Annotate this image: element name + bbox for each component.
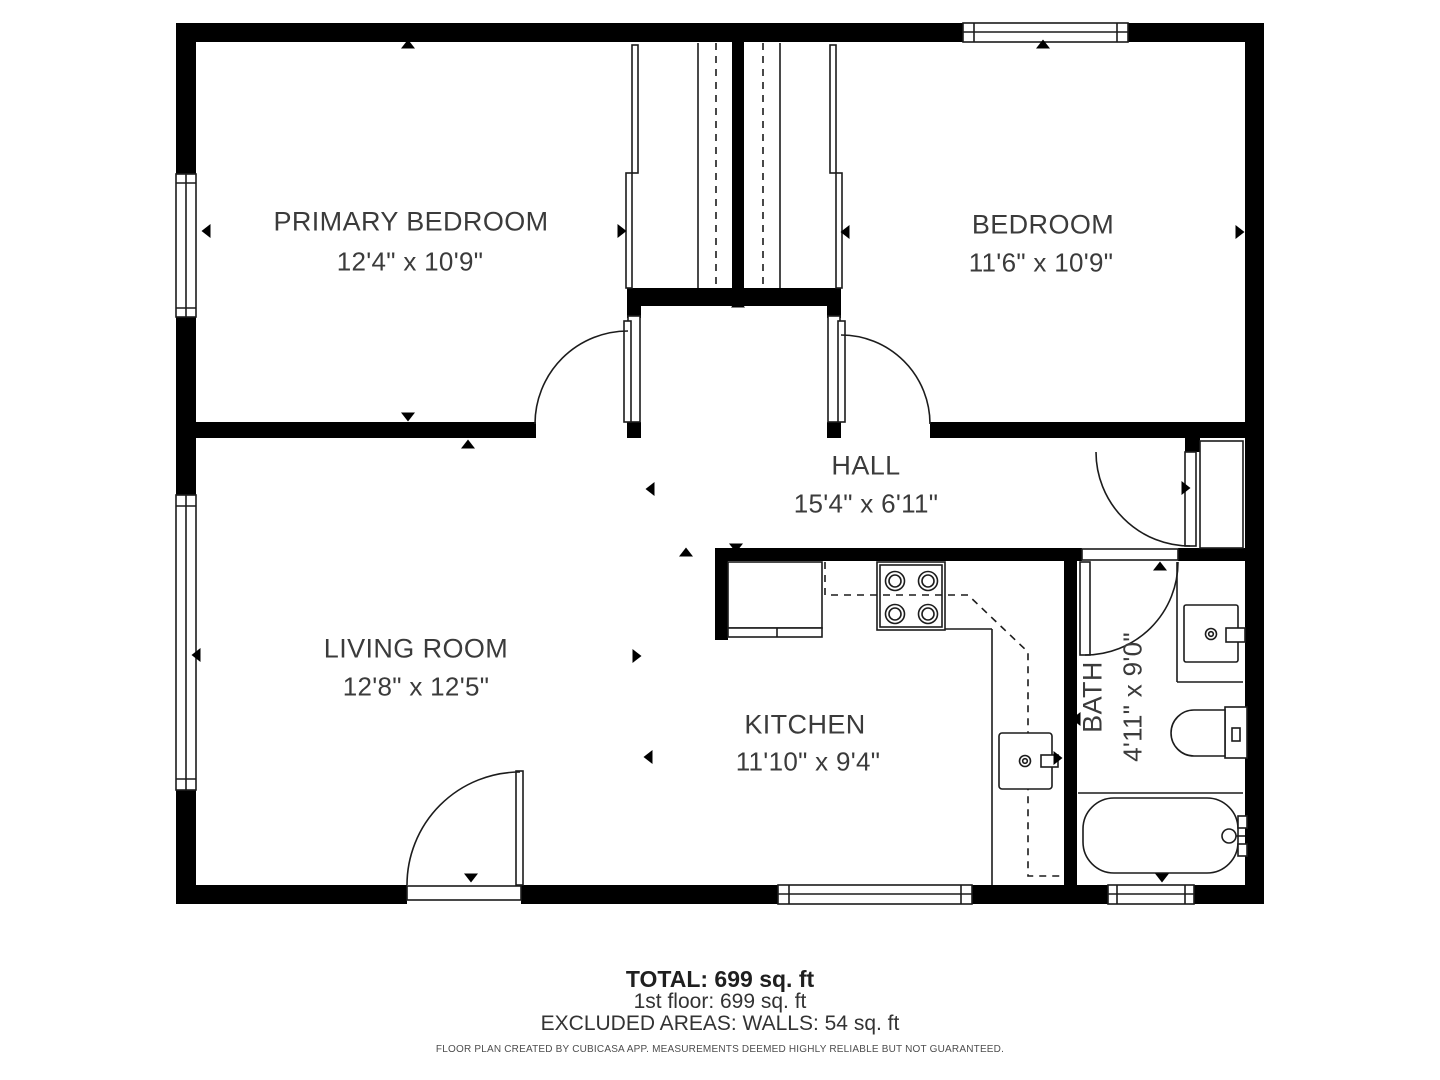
wall <box>627 288 641 318</box>
wall <box>930 422 1245 438</box>
direction-marker-icon <box>841 225 850 239</box>
direction-marker-icon <box>1036 40 1050 49</box>
room-dims-bath: 4'11" x 9'0" <box>1113 632 1152 762</box>
door-leaf <box>1185 452 1196 546</box>
wall <box>715 548 1082 561</box>
direction-marker-icon <box>679 548 693 557</box>
hall-closet <box>1200 441 1243 548</box>
direction-marker-icon <box>192 648 201 662</box>
floor-plan-page: PRIMARY BEDROOM 12'4" x 10'9" BEDROOM 11… <box>0 0 1440 1080</box>
wall <box>176 317 196 495</box>
room-dims-bedroom: 11'6" x 10'9" <box>969 248 1114 279</box>
wall <box>972 885 1108 904</box>
wall <box>176 23 196 174</box>
direction-marker-icon <box>644 750 653 764</box>
door-arc <box>1096 452 1190 546</box>
sliding-door-panel <box>830 45 836 173</box>
direction-marker-icon <box>1153 562 1167 571</box>
door-jamb <box>628 316 640 422</box>
closet-left <box>626 43 716 288</box>
direction-marker-icon <box>1054 751 1063 765</box>
refrigerator-icon <box>728 562 822 637</box>
direction-marker-icon <box>729 544 743 553</box>
wall <box>1178 548 1245 561</box>
door-leaf <box>516 771 523 885</box>
direction-marker-icon <box>618 224 627 238</box>
stove-icon <box>877 562 945 630</box>
door-arc <box>841 335 930 424</box>
direction-marker-icon <box>401 40 415 49</box>
wall <box>176 23 963 42</box>
room-dims-primary-bedroom: 12'4" x 10'9" <box>337 247 484 278</box>
direction-marker-icon <box>646 482 655 496</box>
door-arc <box>535 331 628 424</box>
kitchen-sink-icon <box>999 733 1058 789</box>
total-area-text: TOTAL: 699 sq. ft <box>626 966 814 993</box>
direction-marker-icon <box>461 440 475 449</box>
room-label-bedroom: BEDROOM <box>972 210 1114 241</box>
wall <box>627 422 641 438</box>
window <box>778 885 972 904</box>
wall <box>1245 23 1264 904</box>
disclaimer-text: FLOOR PLAN CREATED BY CUBICASA APP. MEAS… <box>436 1044 1004 1055</box>
room-label-living-room: LIVING ROOM <box>324 634 508 665</box>
bathtub-icon <box>1083 798 1247 873</box>
closet-right <box>763 43 842 288</box>
room-label-primary-bedroom: PRIMARY BEDROOM <box>273 207 548 238</box>
direction-marker-icon <box>401 413 415 422</box>
floor-area-text: 1st floor: 699 sq. ft <box>634 990 807 1014</box>
door-arc <box>407 772 520 885</box>
direction-marker-icon <box>731 299 745 308</box>
vanity-counter <box>1177 562 1243 682</box>
room-label-bath: BATH 4'11" x 9'0" <box>1072 632 1152 762</box>
direction-marker-icon <box>464 874 478 883</box>
kitchen-counter <box>945 629 992 885</box>
wall <box>827 288 841 318</box>
direction-marker-icon <box>1155 874 1169 883</box>
room-dims-hall: 15'4" x 6'11" <box>794 489 939 520</box>
room-dims-kitchen: 11'10" x 9'4" <box>736 747 881 778</box>
sliding-door-panel <box>626 173 632 288</box>
entry-door-threshold <box>407 886 521 900</box>
wall <box>176 885 407 904</box>
direction-marker-icon <box>1236 225 1245 239</box>
wall <box>1185 438 1200 452</box>
window <box>1108 885 1194 904</box>
wall <box>1128 23 1264 42</box>
room-dims-living-room: 12'8" x 12'5" <box>343 672 490 703</box>
room-label-hall: HALL <box>831 451 900 482</box>
plan-linework <box>0 0 1440 1080</box>
wall <box>715 548 728 640</box>
door-leaf <box>624 321 631 422</box>
room-label-bath-name: BATH <box>1072 632 1113 762</box>
direction-marker-icon <box>633 649 642 663</box>
direction-marker-icon <box>1182 481 1191 495</box>
toilet-icon <box>1171 707 1247 758</box>
door-jamb <box>828 316 840 422</box>
direction-marker-icon <box>1072 712 1081 726</box>
wall <box>732 42 744 306</box>
door-leaf <box>838 321 845 422</box>
direction-marker-icon <box>202 224 211 238</box>
bath-door-threshold <box>1082 549 1178 560</box>
wall <box>827 422 841 438</box>
window <box>176 174 196 317</box>
wall <box>1194 885 1264 904</box>
bathroom-sink-icon <box>1184 605 1245 662</box>
window <box>176 495 196 790</box>
room-label-kitchen: KITCHEN <box>744 710 865 741</box>
wall <box>521 885 778 904</box>
wall <box>196 422 536 438</box>
excluded-area-text: EXCLUDED AREAS: WALLS: 54 sq. ft <box>541 1012 900 1036</box>
sliding-door-panel <box>632 45 638 173</box>
